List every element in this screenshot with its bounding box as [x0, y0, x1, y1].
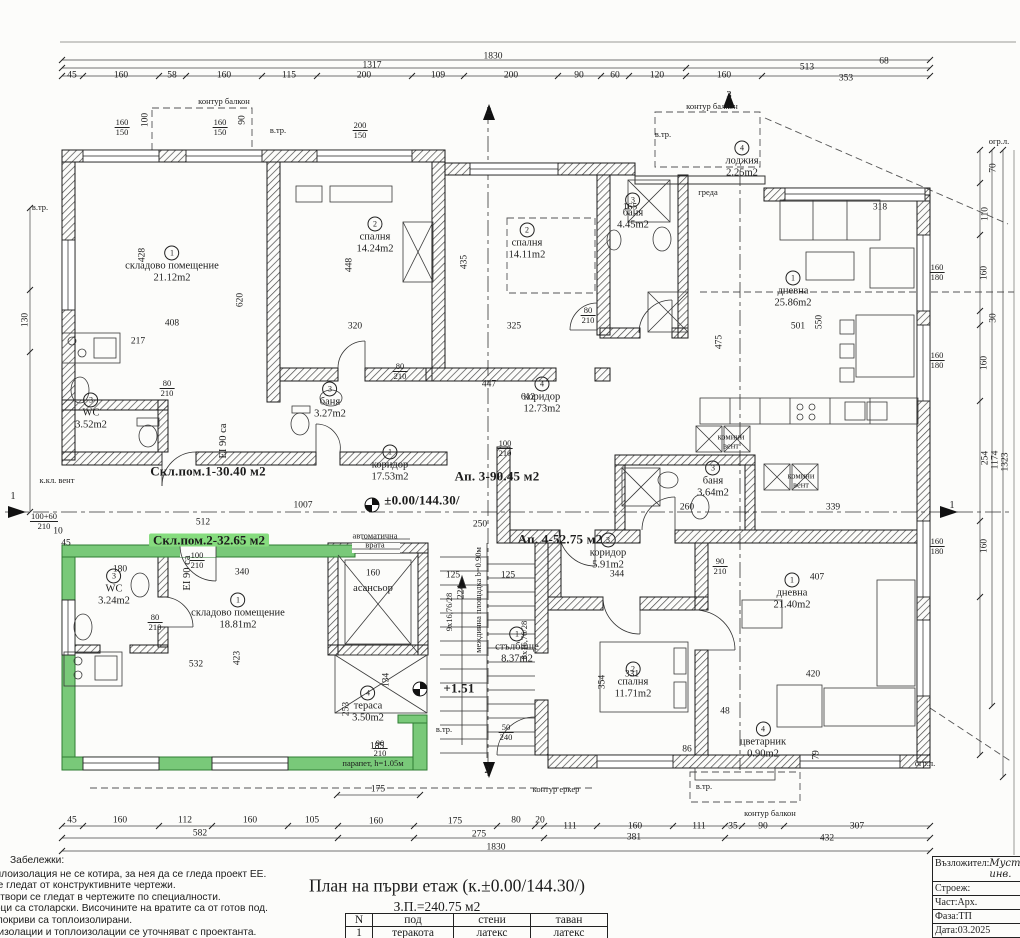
dim-label: 90 [758, 822, 768, 832]
finish-table-cell: теракота [373, 927, 454, 938]
dim-label: 381 [627, 833, 641, 843]
room-area: 3.64m2 [697, 488, 729, 499]
dim-label: 58 [167, 71, 177, 81]
room-area: 8.37m2 [501, 654, 533, 665]
room-number: 4 [534, 376, 549, 391]
dim-label: 1830 [487, 843, 506, 853]
room-label: 3баня3.64m2 [697, 460, 729, 499]
title-block: Възложител:Мустафа и инв.Строеж:п (Част:… [932, 856, 1020, 938]
room-name: дневна [777, 587, 808, 598]
dim-label: 307 [850, 822, 864, 832]
dim-label: 475 [715, 335, 725, 349]
floor-plan-sheet: 1830131751345160581601152001092009060120… [0, 0, 1020, 938]
notes-block: Забележки: зидарски. Топлоизолация не се… [0, 855, 268, 938]
dim-label: 512 [196, 518, 210, 528]
dim-label: 217 [131, 337, 145, 347]
room-name: лоджия [725, 155, 758, 166]
dim-label: 582 [193, 829, 207, 839]
room-label: 1складово помещение18.81m2 [191, 592, 285, 631]
dim-label: 620 [236, 293, 246, 307]
note-line: ни и шайби се гледат от конструктивните … [0, 880, 268, 892]
dim-label: парапет, h=1.05м [342, 759, 403, 768]
dim-label: 80210 [160, 379, 175, 397]
title-block-label: Дата:03.2025 [935, 925, 990, 936]
dim-label: 1 [10, 492, 15, 503]
dim-label: 432 [820, 834, 834, 844]
dim-label: 501 [791, 322, 805, 332]
dim-label: 160 [628, 822, 642, 832]
room-area: 3.24m2 [98, 596, 130, 607]
room-name: коридор [590, 547, 627, 558]
finish-table-header: под [373, 914, 454, 927]
room-name: коридор [372, 459, 409, 470]
plan-label: ±0.00/144.30/ [384, 494, 459, 507]
room-label: 2спалня14.24m2 [356, 216, 393, 255]
room-number: 3 [705, 460, 720, 475]
dim-label: 45 [61, 539, 71, 549]
dim-label: 275 [472, 830, 486, 840]
room-area: 3.50m2 [352, 713, 384, 724]
room-label: 4коридор12.73m2 [523, 376, 560, 415]
note-line: зидарски. Топлоизолация не се котира, за… [0, 869, 268, 881]
room-name: спалня [360, 231, 391, 242]
dim-label: 45 [67, 816, 77, 826]
title-block-row: Фаза:ТПГ [933, 910, 1020, 924]
dim-label: 260 [680, 503, 694, 513]
dim-label: 320 [348, 322, 362, 332]
title-block-row: Строеж:п ( [933, 882, 1020, 896]
room-name: складово помещение [191, 607, 285, 618]
room-number: 3 [625, 192, 640, 207]
dim-label: 407 [810, 573, 824, 583]
room-label: 3коридор5.91m2 [590, 532, 627, 571]
room-number: 1 [164, 245, 179, 260]
room-number: 1 [785, 270, 800, 285]
room-name: коридор [524, 391, 561, 402]
dim-label: 160 [366, 569, 380, 579]
finish-table: Nподстенитаван 1теракоталатекслатекс [345, 913, 608, 938]
room-area: 21.40m2 [773, 600, 810, 611]
dim-label: 110 [981, 207, 991, 221]
title-block-label: Възложител: [935, 858, 989, 880]
dim-label: 80210 [393, 362, 408, 380]
dim-label: 50240 [499, 723, 514, 741]
dim-label: 160150 [115, 118, 130, 136]
dim-label: 160 [113, 816, 127, 826]
room-name: спалня [618, 676, 649, 687]
dim-label: в.тр. [32, 203, 48, 212]
room-number: 4 [360, 685, 375, 700]
dim-label: 353 [839, 74, 853, 84]
dim-label: 80 [511, 816, 521, 826]
sheet-title: План на първи етаж (к.±0.00/144.30/) [309, 876, 585, 897]
dim-label: 1830 [484, 52, 503, 62]
room-area: 25.86m2 [774, 298, 811, 309]
dim-label: 125 [446, 571, 460, 581]
dim-label: 109 [431, 71, 445, 81]
room-area: 18.81m2 [219, 620, 256, 631]
dim-label: 550 [815, 315, 825, 329]
dim-label: 160180 [930, 263, 945, 281]
room-name: WC [106, 583, 123, 594]
title-block-row: Част:Арх.ч [933, 896, 1020, 910]
room-area: 14.11m2 [509, 250, 546, 261]
room-number: 1 [382, 444, 397, 459]
title-block-label: Част:Арх. [935, 897, 977, 908]
plan-label: +1.51 [443, 682, 474, 695]
room-label: 2спалня11.71m2 [615, 661, 652, 700]
dim-label: 1323 [1001, 453, 1011, 472]
dim-label: в.тр. [655, 130, 671, 139]
finish-table-row: 1теракоталатекслатекс [346, 927, 608, 938]
dim-label: 448 [345, 258, 355, 272]
room-label: 1дневна25.86m2 [774, 270, 811, 309]
dim-label: 9x16,76/28 [445, 593, 454, 632]
room-area: 0.90m2 [747, 749, 779, 760]
finish-table-cell: латекс [454, 927, 531, 938]
room-label: 4лоджия2.25m2 [725, 140, 758, 179]
dim-label: 435 [460, 255, 470, 269]
dim-label: 513 [800, 63, 814, 73]
dim-label: в.тр. [270, 126, 286, 135]
room-number: 3 [322, 381, 337, 396]
finish-table-header: стени [454, 914, 531, 927]
dim-label: 60 [610, 71, 620, 81]
dim-label: 532 [189, 660, 203, 670]
dim-label: EI 90 са [219, 423, 230, 458]
dim-label: междинна площадка b=0.90м [474, 547, 483, 653]
dim-label: контур еркер [533, 785, 580, 794]
dim-label: к.кл. вент [40, 476, 75, 485]
room-label: 3WC3.24m2 [98, 568, 130, 607]
room-label: 3WC3.52m2 [75, 392, 107, 431]
dim-label: 2 [484, 766, 489, 777]
title-block-row: Дата:03.2025 [933, 924, 1020, 937]
annotation-layer: 1830131751345160581601152001092009060120… [0, 0, 1020, 938]
room-name: дневна [778, 285, 809, 296]
dim-label: 200 [504, 71, 518, 81]
finish-table-header-row: Nподстенитаван [346, 914, 608, 927]
dim-label: 111 [692, 822, 706, 832]
dim-label: 344 [610, 570, 624, 580]
dim-label: 90210 [713, 557, 728, 575]
dim-label: 80210 [148, 613, 163, 631]
room-area: 17.53m2 [371, 472, 408, 483]
room-area: 12.73m2 [523, 404, 560, 415]
dim-label: контур балкон [744, 809, 796, 818]
room-name: баня [320, 396, 340, 407]
finish-table-cell: 1 [346, 927, 373, 938]
room-area: 5.91m2 [592, 560, 624, 571]
dim-label: 90 [574, 71, 584, 81]
dim-label: коминивент [717, 433, 746, 450]
dim-label: греда [698, 188, 718, 197]
room-number: 2 [520, 222, 535, 237]
room-label: 1дневна21.40m2 [773, 572, 810, 611]
dim-label: 420 [806, 670, 820, 680]
dim-label: 100 [141, 113, 151, 127]
dim-label: 3 [726, 91, 731, 102]
dim-label: огр.л. [915, 759, 935, 768]
dim-label: 160 [217, 71, 231, 81]
dim-label: 115 [282, 71, 296, 81]
dim-label: 160 [980, 539, 990, 553]
room-name: складово помещение [125, 260, 219, 271]
room-label: 3баня3.27m2 [314, 381, 346, 420]
room-number: 1 [230, 592, 245, 607]
dim-label: 160 [980, 356, 990, 370]
room-number: 1 [509, 626, 524, 641]
dim-label: в.тр. [696, 782, 712, 791]
title-block-label: Фаза:ТП [935, 911, 972, 922]
room-area: 4.45m2 [617, 220, 649, 231]
dim-label: 48 [720, 707, 730, 717]
dim-label: 340 [235, 568, 249, 578]
room-label: 1стълбище8.37m2 [495, 626, 539, 665]
dim-label: 68 [879, 57, 889, 67]
room-number: 3 [83, 392, 98, 407]
dim-label: 20 [535, 816, 545, 826]
dim-label: 30 [989, 313, 999, 323]
dim-label: 339 [826, 503, 840, 513]
note-line: ите за прозорци са столарски. Височините… [0, 903, 268, 915]
dim-label: 90 [238, 115, 248, 125]
dim-label: 160 [980, 266, 990, 280]
dim-label: 175 [371, 785, 385, 795]
dim-label: 447 [482, 380, 496, 390]
room-area: 3.27m2 [314, 409, 346, 420]
dim-label: 1 [949, 501, 954, 512]
dim-label: 423 [233, 651, 243, 665]
room-number: 4 [734, 140, 749, 155]
notes-heading: Забележки: [10, 855, 268, 867]
room-name: стълбище [495, 641, 539, 652]
room-label: 4цветарник0.90m2 [740, 721, 786, 760]
room-number: 1 [784, 572, 799, 587]
dim-label: 253 [342, 702, 352, 716]
dim-label: 318 [873, 203, 887, 213]
room-name: баня [703, 475, 723, 486]
dim-label: 86 [682, 745, 692, 755]
room-number: 3 [106, 568, 121, 583]
dim-label: 325 [507, 322, 521, 332]
note-line: лационните отвори се гледат в чертежите … [0, 892, 268, 904]
dim-label: 35 [728, 822, 738, 832]
dim-label: 79 [812, 750, 822, 760]
title-block-row: Възложител:Мустафа и инв. [933, 857, 1020, 882]
dim-label: 160150 [213, 118, 228, 136]
room-label: 2спалня14.11m2 [509, 222, 546, 261]
dim-label: 111 [563, 822, 577, 832]
room-area: 2.25m2 [726, 168, 758, 179]
dim-label: автоматичнаврата [352, 532, 399, 549]
finish-table-body: 1теракоталатекслатекс [346, 927, 608, 938]
room-number: 4 [756, 721, 771, 736]
room-label: 4тераса3.50m2 [352, 685, 384, 724]
dim-label: коминивент [787, 472, 816, 489]
dim-label: 160 [114, 71, 128, 81]
dim-label: контур балкон [686, 102, 738, 111]
notes-lines: зидарски. Топлоизолация не се котира, за… [0, 869, 268, 938]
finish-table-header: N [346, 914, 373, 927]
room-number: 2 [626, 661, 641, 676]
dim-label: 120 [650, 71, 664, 81]
plan-label: Скл.пом.1-30.40 м2 [150, 465, 266, 478]
room-area: 3.52m2 [75, 420, 107, 431]
dim-label: 100210 [498, 439, 513, 457]
room-name: тераса [354, 700, 383, 711]
note-line: риали, хидроизолации и топлоизолации се … [0, 927, 268, 938]
dim-label: 160180 [930, 351, 945, 369]
room-name: цветарник [740, 736, 786, 747]
dim-label: EI 90 са [183, 555, 194, 590]
room-area: 11.71m2 [615, 689, 652, 700]
dim-label: 2 [486, 107, 491, 118]
room-area: 14.24m2 [356, 244, 393, 255]
dim-label: 224 [457, 585, 467, 599]
room-name: WC [83, 407, 100, 418]
dim-label: 45 [67, 71, 77, 81]
dim-label: 130 [21, 313, 31, 327]
room-label: 3баня4.45m2 [617, 192, 649, 231]
plan-label: Ап. 3-90.45 м2 [455, 470, 540, 483]
dim-label: асансьор [353, 584, 393, 595]
dim-label: 200150 [353, 121, 368, 139]
room-label: 1складово помещение21.12m2 [125, 245, 219, 284]
dim-label: 160 [243, 816, 257, 826]
dim-label: 354 [598, 675, 608, 689]
title-block-value: Мустафа и инв. [989, 858, 1020, 880]
room-number: 2 [367, 216, 382, 231]
title-block-label: Строеж: [935, 883, 970, 894]
room-area: 21.12m2 [153, 273, 190, 284]
dim-label: контур балкон [198, 97, 250, 106]
note-line: ни, еркери и покриви са топлоизолирани. [0, 915, 268, 927]
room-label: 1коридор17.53m2 [371, 444, 408, 483]
dim-label: 70 [989, 163, 999, 173]
dim-label: 175 [448, 817, 462, 827]
dim-label: 112 [178, 816, 192, 826]
dim-label: в.тр. [436, 725, 452, 734]
dim-label: 200 [357, 71, 371, 81]
dim-label: 1007 [294, 501, 313, 511]
plan-label: Скл.пом.2-32.65 м2 [149, 534, 269, 547]
finish-table-cell: латекс [531, 927, 608, 938]
dim-label: 125 [501, 571, 515, 581]
dim-label: 105 [305, 816, 319, 826]
room-number: 3 [601, 532, 616, 547]
dim-label: 160 [717, 71, 731, 81]
dim-label: 408 [165, 319, 179, 329]
dim-label: 10 [53, 527, 63, 537]
room-name: спалня [512, 237, 543, 248]
dim-label: огр.л. [989, 137, 1009, 146]
finish-table-header: таван [531, 914, 608, 927]
dim-label: 250 [473, 520, 487, 530]
dim-label: 160180 [930, 537, 945, 555]
dim-label: 80210 [581, 306, 596, 324]
dim-label: 185 [370, 742, 384, 752]
room-name: баня [623, 207, 643, 218]
dim-label: 160 [369, 817, 383, 827]
